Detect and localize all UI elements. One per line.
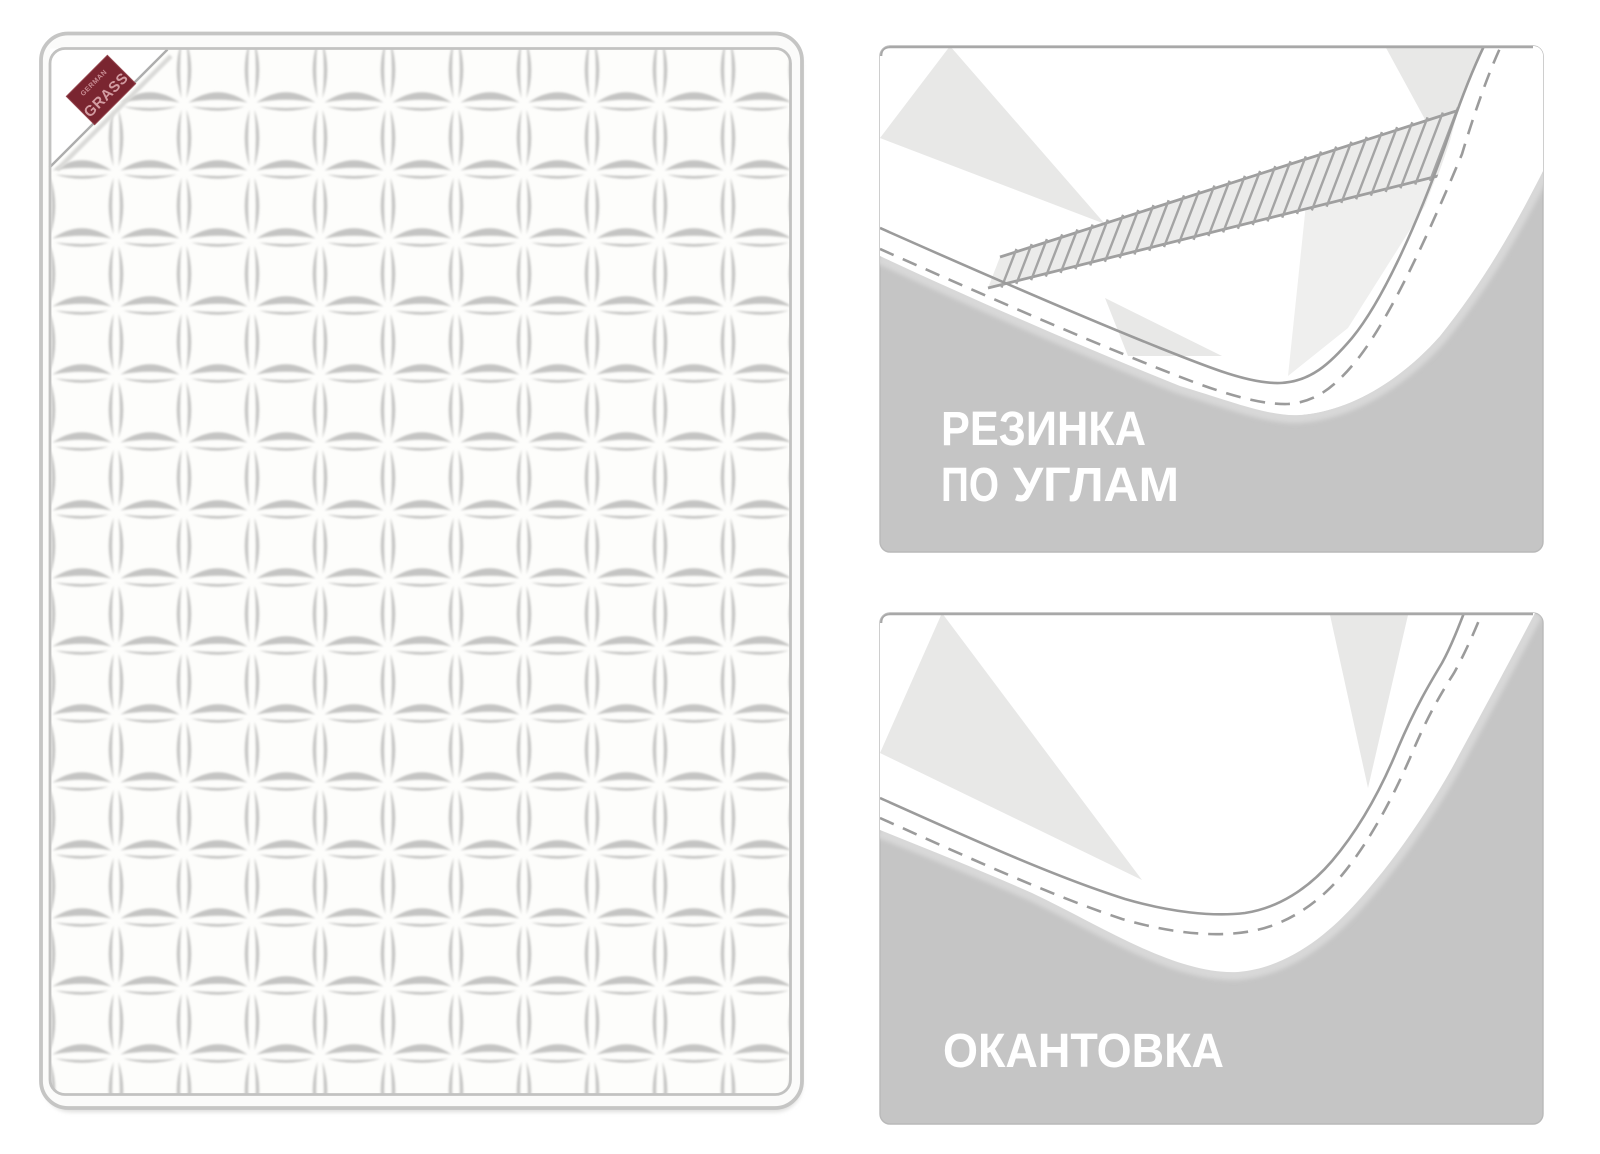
svg-text:РЕЗИНКА: РЕЗИНКА <box>941 403 1146 456</box>
svg-text:ОКАНТОВКА: ОКАНТОВКА <box>943 1025 1224 1078</box>
svg-text:УГЛАМ: УГЛАМ <box>1013 459 1179 512</box>
svg-text:ПО: ПО <box>941 459 999 512</box>
